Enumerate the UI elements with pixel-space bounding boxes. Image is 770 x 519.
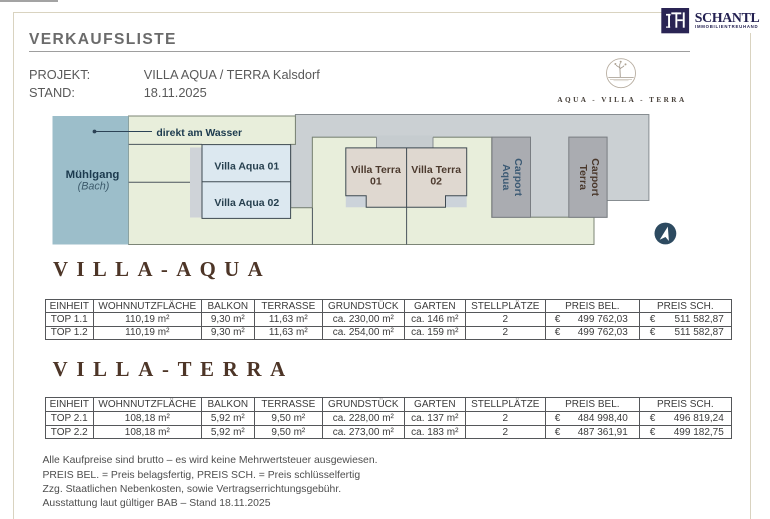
svg-text:(Bach): (Bach) [78,181,110,193]
svg-text:Carport: Carport [512,158,524,196]
svg-text:Carport: Carport [589,158,601,196]
svg-text:Terra: Terra [577,164,589,190]
svg-text:Aqua: Aqua [500,164,512,190]
svg-text:Mühlgang: Mühlgang [66,169,120,181]
svg-text:01: 01 [370,176,382,188]
svg-text:Villa Terra: Villa Terra [351,164,401,176]
svg-text:Villa Aqua 01: Villa Aqua 01 [214,160,279,172]
svg-text:02: 02 [430,176,442,188]
svg-text:direkt am Wasser: direkt am Wasser [156,128,242,139]
svg-text:Villa Terra: Villa Terra [411,164,461,176]
svg-text:Villa Aqua 02: Villa Aqua 02 [214,197,279,209]
